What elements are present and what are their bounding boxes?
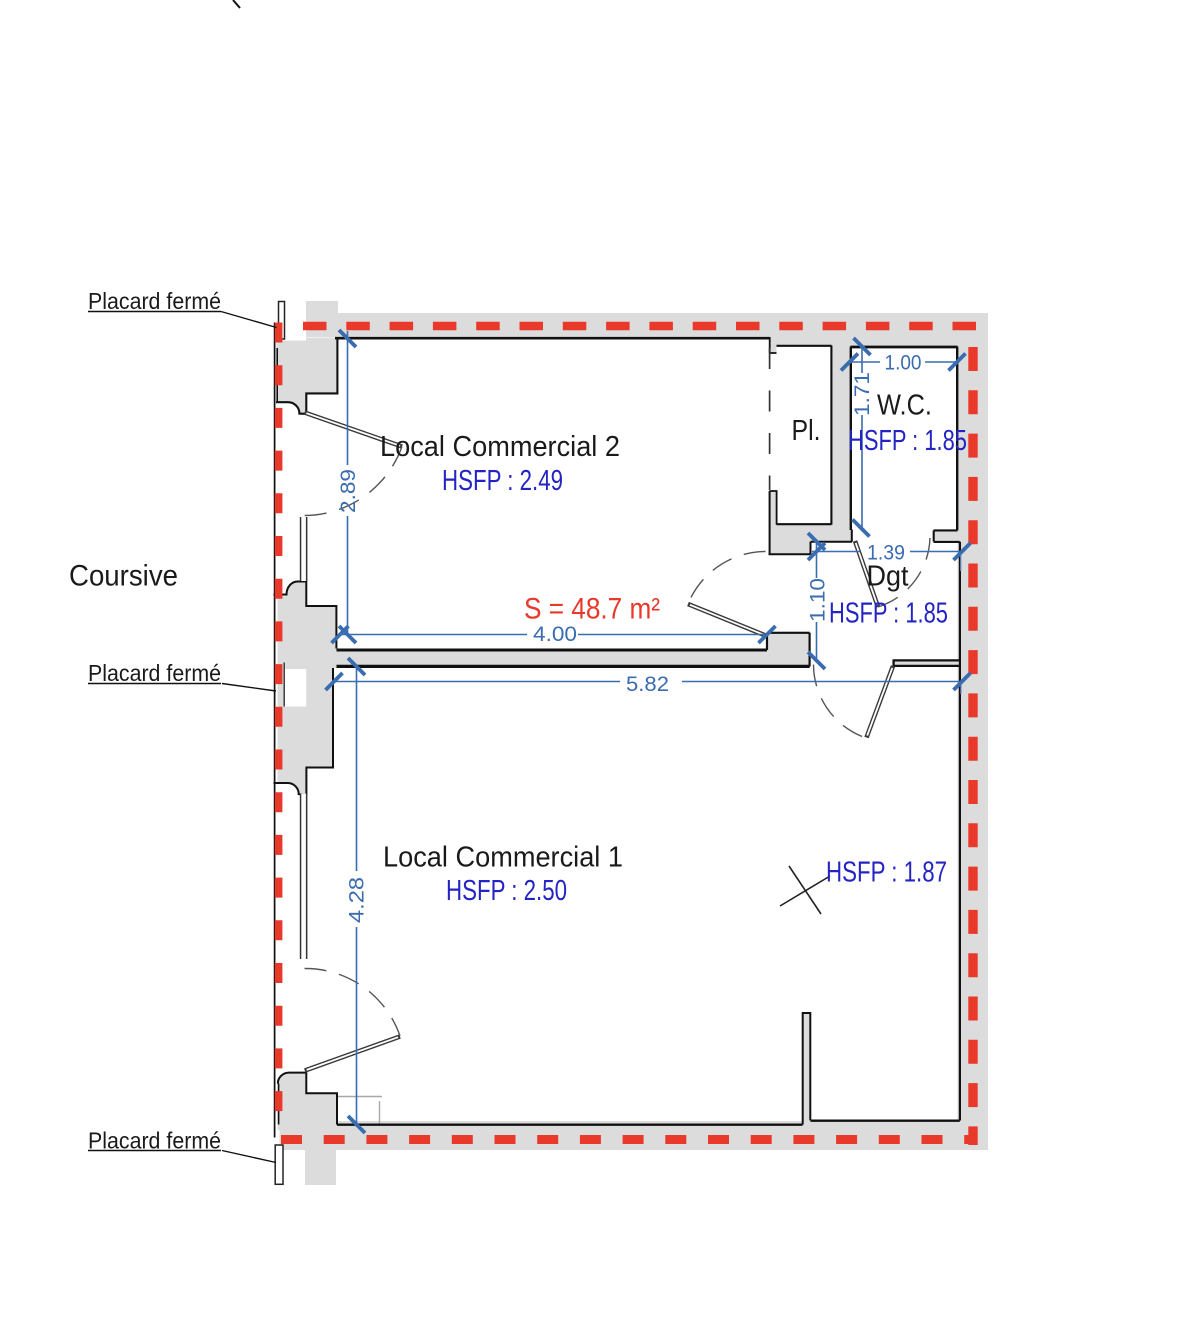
svg-text:Dgt: Dgt <box>867 561 909 593</box>
svg-text:Placard fermé: Placard fermé <box>88 660 221 686</box>
svg-text:1.10: 1.10 <box>806 578 830 622</box>
svg-text:5.82: 5.82 <box>626 672 669 696</box>
svg-text:2.89: 2.89 <box>336 469 360 513</box>
svg-text:HSFP : 1.85: HSFP : 1.85 <box>829 598 948 630</box>
svg-text:Placard fermé: Placard fermé <box>88 288 221 314</box>
svg-text:W.C.: W.C. <box>877 390 932 422</box>
svg-text:1.00: 1.00 <box>885 351 922 375</box>
svg-text:4.28: 4.28 <box>345 877 369 923</box>
svg-text:Pl.: Pl. <box>792 415 821 447</box>
svg-text:1.39: 1.39 <box>867 541 905 565</box>
svg-text:HSFP : 1.87: HSFP : 1.87 <box>826 857 947 889</box>
svg-text:HSFP : 2.49: HSFP : 2.49 <box>442 465 563 497</box>
svg-text:HSFP : 2.50: HSFP : 2.50 <box>446 875 567 907</box>
svg-text:S = 48.7 m²: S = 48.7 m² <box>524 593 660 626</box>
svg-text:Local Commercial 2: Local Commercial 2 <box>380 431 620 463</box>
svg-text:Coursive: Coursive <box>69 560 178 593</box>
svg-text:1.71: 1.71 <box>850 372 874 416</box>
svg-text:Local Commercial 1: Local Commercial 1 <box>383 842 623 874</box>
svg-text:HSFP : 1.85: HSFP : 1.85 <box>848 425 967 457</box>
svg-text:Placard fermé: Placard fermé <box>88 1128 221 1154</box>
svg-text:4.00: 4.00 <box>533 622 577 646</box>
